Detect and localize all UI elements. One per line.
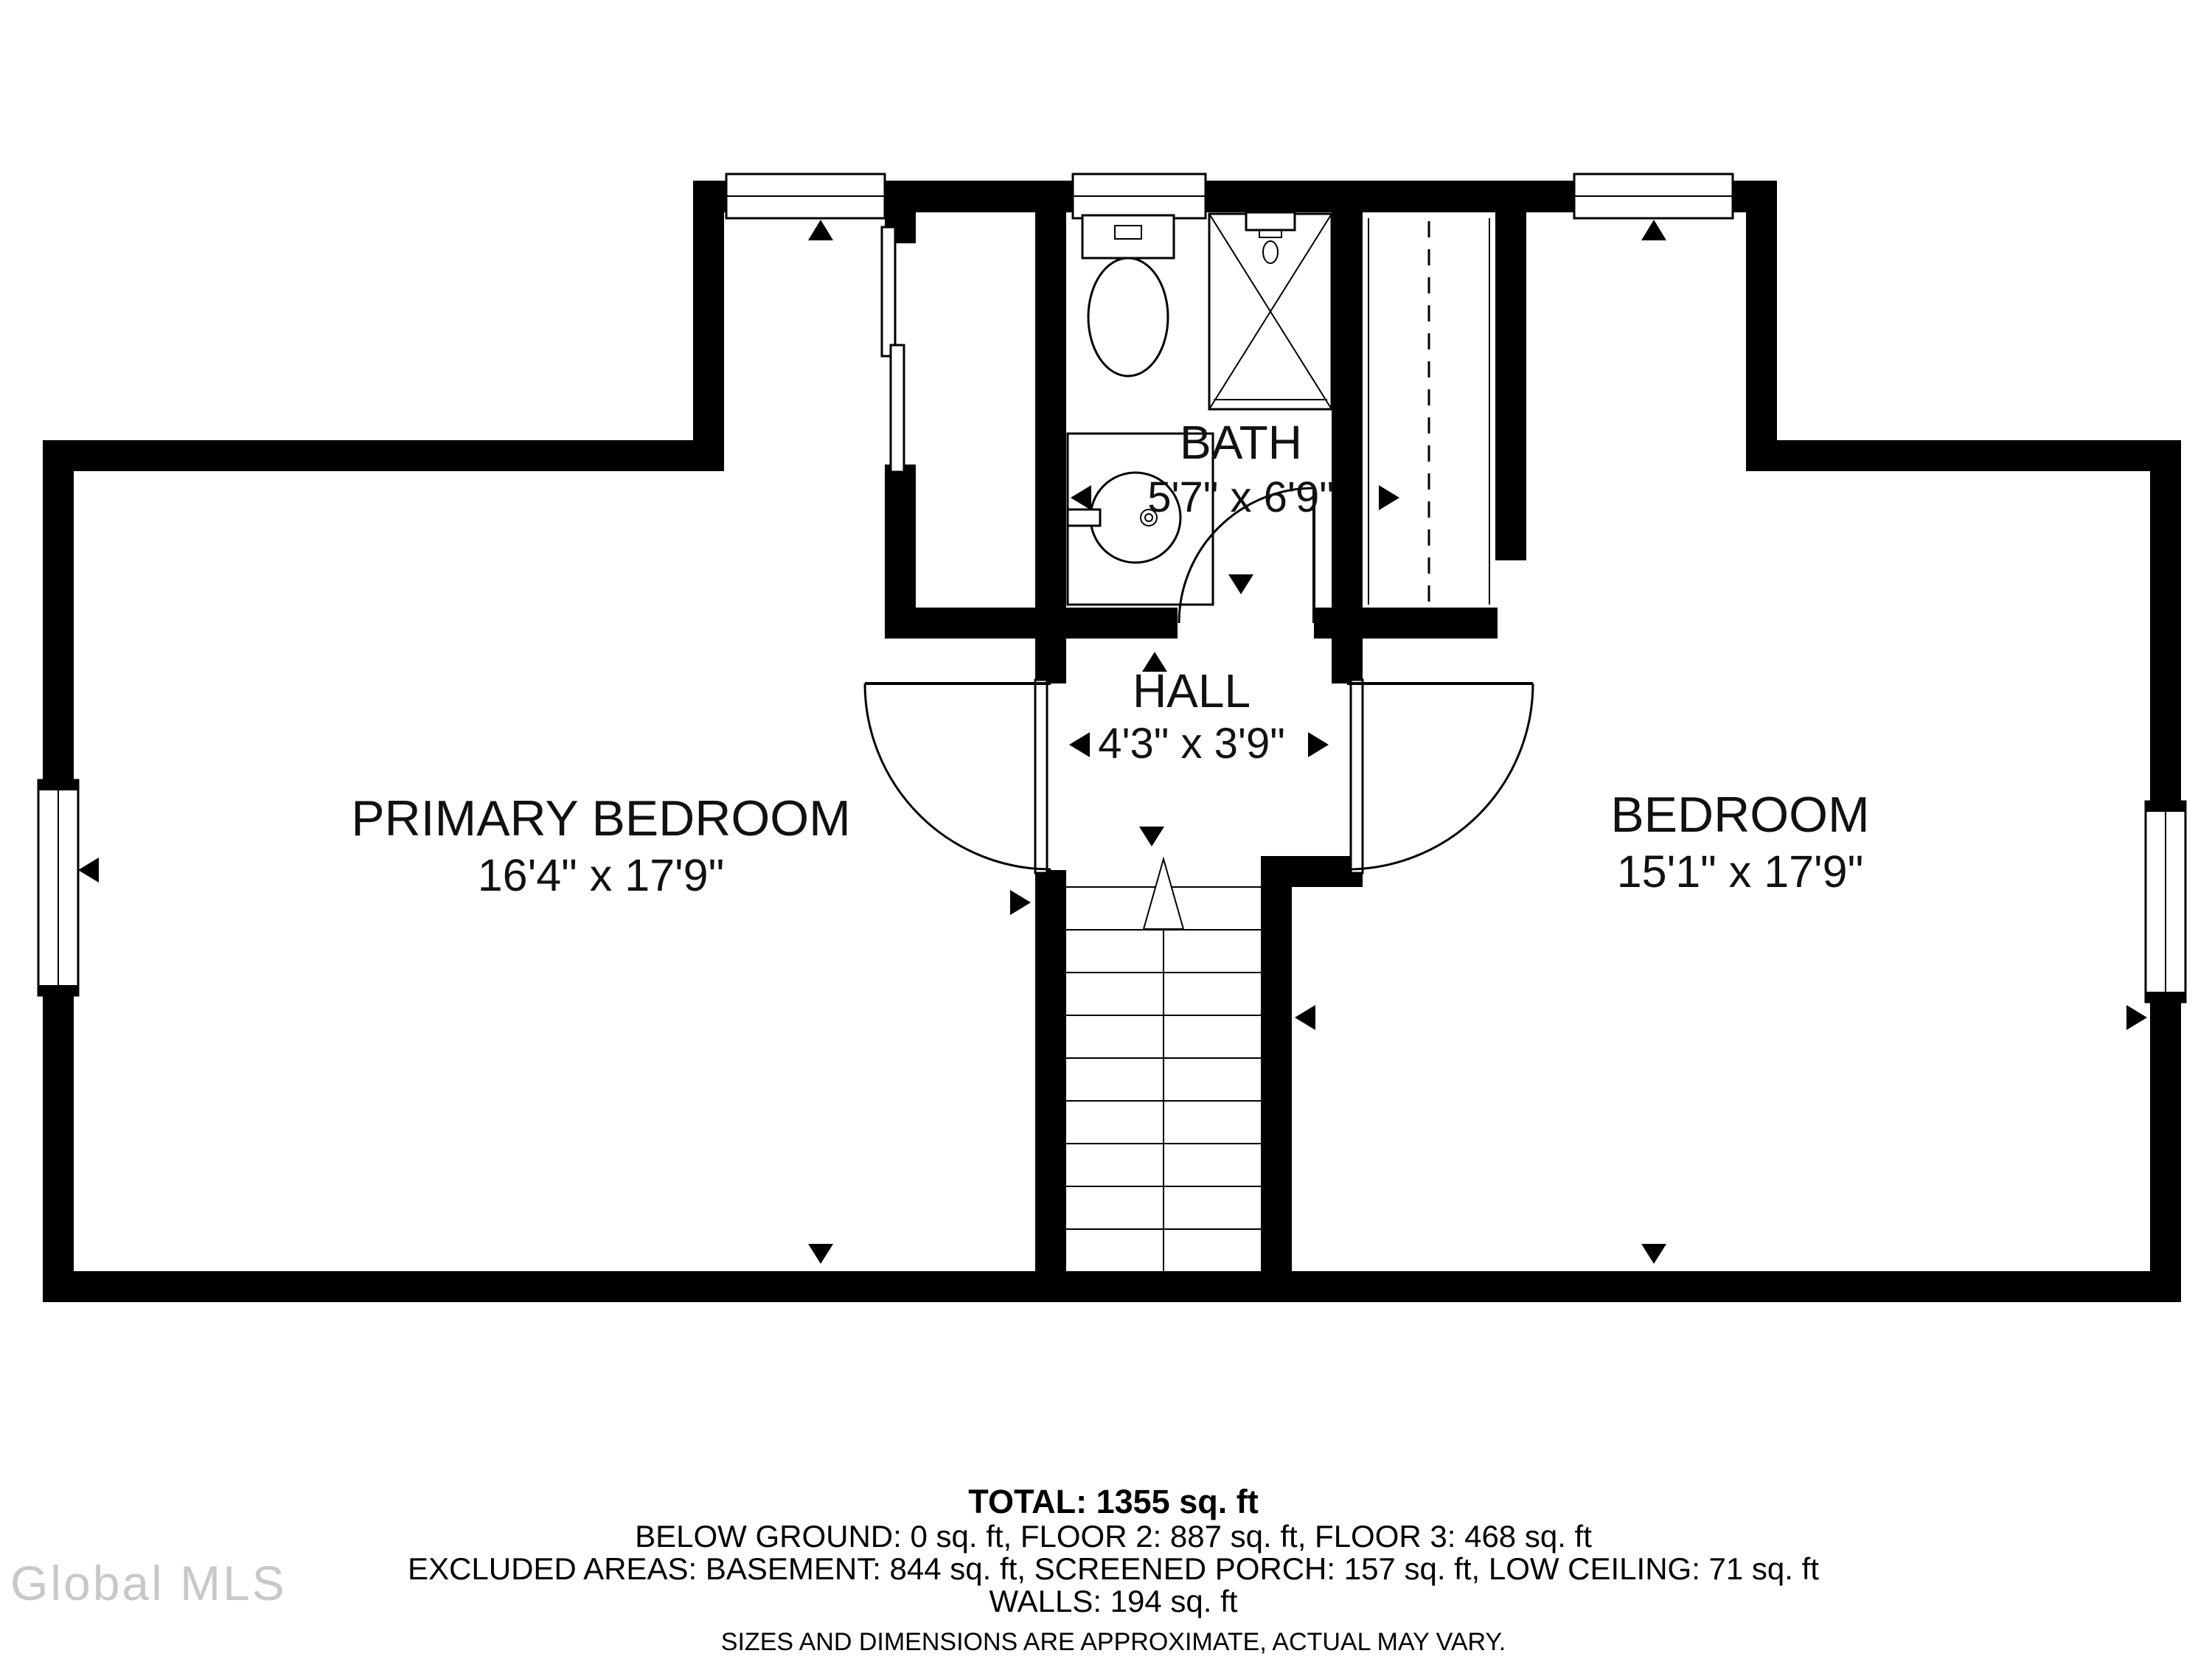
- bedroom-door-swing: [1347, 680, 1533, 873]
- window-top-left: [726, 174, 885, 218]
- primary-bedroom-door-swing: [865, 680, 1051, 873]
- closet-rod: [1368, 218, 1489, 605]
- window-left: [38, 780, 78, 995]
- footer-area-summary: TOTAL: 1355 sq. ft BELOW GROUND: 0 sq. f…: [408, 1483, 1819, 1656]
- wall-segment: [693, 181, 724, 471]
- arrow-down-icon: [1228, 574, 1253, 594]
- footer-walls: WALLS: 194 sq. ft: [990, 1584, 1238, 1618]
- wall-segment: [1332, 608, 1363, 684]
- wall-segment: [2150, 440, 2181, 801]
- arrow-down-icon: [808, 1244, 833, 1264]
- wall-segment: [43, 1271, 2181, 1302]
- bedroom-label: BEDROOM: [1610, 787, 1869, 843]
- shower-head-icon: [1246, 212, 1295, 230]
- floor-plan-page: PRIMARY BEDROOM 16'4" x 17'9" BEDROOM 15…: [0, 0, 2212, 1659]
- window-top-right: [1574, 174, 1733, 218]
- wall-segment: [1746, 181, 1777, 471]
- arrow-right-icon: [1010, 890, 1031, 915]
- wall-segment: [885, 608, 1178, 639]
- arrow-right-icon: [1308, 732, 1329, 757]
- arrow-down-icon: [1139, 827, 1164, 846]
- primary-bedroom-dimensions: 16'4" x 17'9": [478, 850, 725, 900]
- primary-bedroom-label: PRIMARY BEDROOM: [351, 790, 851, 846]
- wall-segment: [1777, 440, 2181, 471]
- arrow-right-icon: [1379, 485, 1399, 510]
- wall-segment: [1206, 181, 1574, 212]
- wall-segment: [1035, 870, 1066, 1302]
- arrow-up-icon: [1641, 220, 1666, 240]
- arrow-right-icon: [2126, 1005, 2147, 1030]
- wall-segment: [885, 465, 916, 608]
- footer-excluded: EXCLUDED AREAS: BASEMENT: 844 sq. ft, SC…: [408, 1551, 1819, 1586]
- bath-dimensions: 5'7" x 6'9": [1147, 473, 1335, 521]
- bedroom-dimensions: 15'1" x 17'9": [1617, 846, 1864, 897]
- stairs-up-arrow-icon: [1144, 859, 1183, 929]
- window-top-middle: [1073, 174, 1206, 218]
- toilet-fixture: [1082, 215, 1174, 376]
- footer-total: TOTAL: 1355 sq. ft: [968, 1483, 1258, 1520]
- footer-floors: BELOW GROUND: 0 sq. ft, FLOOR 2: 887 sq.…: [635, 1519, 1592, 1554]
- arrow-left-icon: [78, 858, 99, 883]
- arrow-down-icon: [1641, 1244, 1666, 1264]
- arrow-up-icon: [808, 220, 833, 240]
- wall-segment: [885, 181, 1073, 212]
- hall-label: HALL: [1133, 664, 1251, 717]
- wall-segment: [1332, 212, 1363, 608]
- global-mls-watermark: Global MLS: [10, 1556, 287, 1610]
- wall-segment: [43, 440, 74, 780]
- floor-plan-svg: PRIMARY BEDROOM 16'4" x 17'9" BEDROOM 15…: [0, 0, 2212, 1659]
- window-right: [2146, 801, 2185, 1002]
- sliding-closet-door: [882, 227, 904, 472]
- wall-segment: [43, 995, 74, 1302]
- arrow-left-icon: [1069, 732, 1090, 757]
- wall-segment: [1035, 212, 1066, 608]
- hall-dimensions: 4'3" x 3'9": [1098, 720, 1285, 768]
- wall-segment: [1035, 608, 1066, 684]
- wall-segment: [2150, 1002, 2181, 1302]
- stairs: [1066, 859, 1261, 1271]
- arrow-left-icon: [1295, 1005, 1315, 1030]
- wall-segment: [1495, 212, 1526, 560]
- wall-segment: [43, 440, 693, 471]
- footer-disclaimer: SIZES AND DIMENSIONS ARE APPROXIMATE, AC…: [721, 1628, 1506, 1656]
- wall-segment: [1261, 856, 1292, 1302]
- shower-fixture: [1209, 212, 1332, 409]
- bath-label: BATH: [1180, 416, 1302, 469]
